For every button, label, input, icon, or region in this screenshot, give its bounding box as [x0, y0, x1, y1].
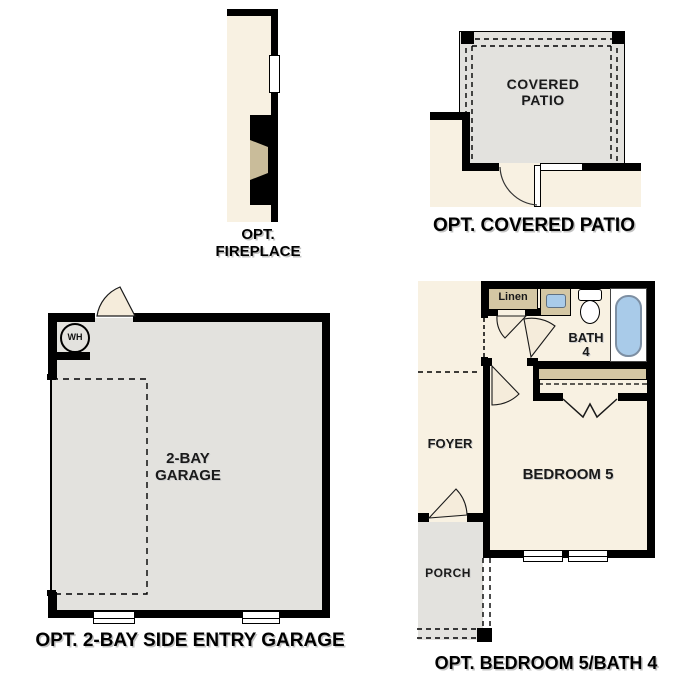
garage-right-wall — [322, 313, 330, 618]
water-heater-nook-wall — [48, 352, 90, 360]
foyer-label: FOYER — [410, 436, 490, 451]
water-heater-symbol: WH — [60, 323, 90, 353]
patio-wall-bottom-left — [462, 163, 499, 171]
closet-front-wall-right — [618, 393, 649, 401]
patio-room-label-line1: COVERED — [466, 76, 620, 92]
hall-bottom-wall-left — [481, 358, 492, 366]
patio-room-label: COVERED PATIO — [466, 76, 620, 108]
bath-label-line1: BATH — [555, 331, 617, 345]
porch-post — [477, 628, 492, 642]
entry-wall-left — [418, 513, 429, 522]
bedroom-caption: OPT. BEDROOM 5/BATH 4 — [415, 653, 677, 674]
closet-front-wall-left — [533, 393, 563, 401]
closet-shelf — [538, 368, 647, 380]
patio-window — [540, 163, 583, 171]
bedroom-window-left-mullion — [524, 556, 562, 557]
bedroom-window-right — [568, 550, 608, 562]
sink — [546, 294, 566, 308]
bedroom-left-wall — [483, 366, 490, 558]
bath-label: BATH 4 — [555, 331, 617, 359]
patio-wall-bottom-right — [583, 163, 641, 171]
side-entry-garage-door — [50, 379, 52, 592]
water-heater-label: WH — [68, 332, 83, 342]
bedroom-label: BEDROOM 5 — [498, 466, 638, 483]
fireplace-chase — [250, 115, 275, 205]
patio-post-left — [461, 31, 474, 44]
porch-label: PORCH — [408, 566, 488, 580]
bedroom-right-wall — [647, 281, 655, 558]
toilet-bowl — [580, 300, 600, 324]
fireplace-caption-line2: FIREPLACE — [178, 243, 338, 260]
patio-wall-left-vertical — [462, 112, 470, 170]
garage-caption: OPT. 2-BAY SIDE ENTRY GARAGE — [30, 630, 350, 652]
garage-service-door — [97, 287, 135, 316]
bedroom-window-right-mullion — [569, 556, 607, 557]
garage-bottom-wall — [48, 610, 330, 618]
garage-window-left — [93, 611, 135, 624]
patio-room-label-line2: PATIO — [466, 92, 620, 108]
garage-window-right-mullion — [243, 618, 279, 619]
garage-window-left-mullion — [94, 618, 134, 619]
fireplace-caption: OPT. FIREPLACE — [178, 226, 338, 260]
bathtub — [615, 295, 642, 357]
garage-room-label-line1: 2-BAY — [118, 450, 258, 467]
entry-wall-right — [467, 513, 483, 522]
floor-plan-canvas: WH — [0, 0, 687, 687]
garage-window-right — [242, 611, 280, 624]
bath-label-line2: 4 — [555, 345, 617, 359]
bedroom-window-left — [523, 550, 563, 562]
garage-top-wall-right — [133, 313, 330, 322]
fireplace-caption-line1: OPT. — [178, 226, 338, 243]
linen-label: Linen — [488, 291, 538, 303]
porch-floor — [418, 522, 483, 640]
patio-post-right — [612, 31, 625, 44]
patio-door-leaf — [534, 165, 541, 207]
garage-left-wall-top — [48, 313, 57, 379]
garage-room-label-line2: GARAGE — [118, 467, 258, 484]
fireplace-window — [269, 55, 280, 93]
garage-room-label: 2-BAY GARAGE — [118, 450, 258, 484]
patio-caption: OPT. COVERED PATIO — [414, 215, 654, 237]
